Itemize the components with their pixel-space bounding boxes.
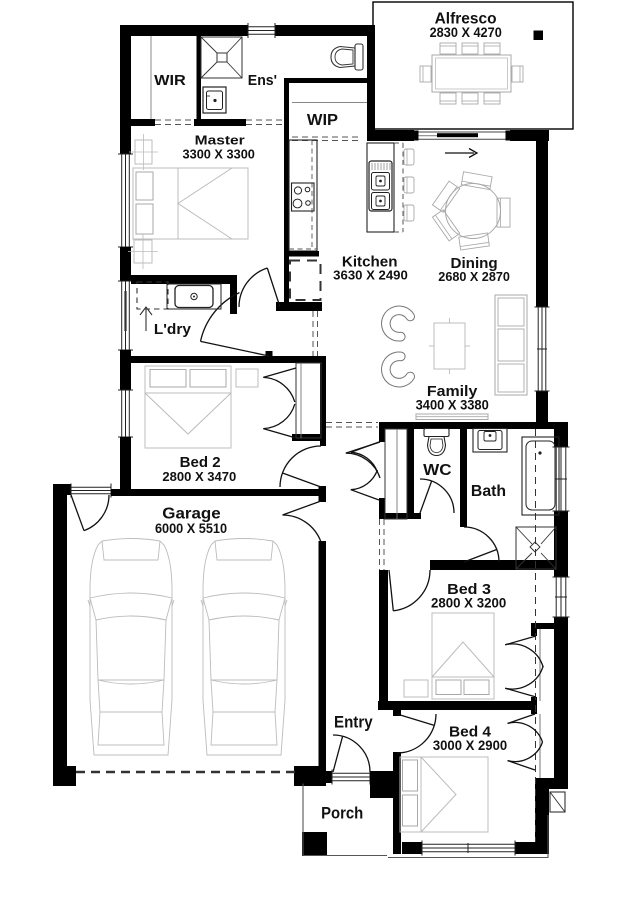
svg-text:2800 X 3200: 2800 X 3200: [431, 595, 507, 610]
svg-text:Ens': Ens': [248, 73, 277, 89]
svg-text:WIP: WIP: [307, 112, 338, 129]
svg-text:Porch: Porch: [321, 805, 363, 823]
svg-text:WC: WC: [423, 462, 451, 479]
svg-text:3400 X 3380: 3400 X 3380: [416, 397, 489, 412]
svg-text:3300 X 3300: 3300 X 3300: [183, 147, 255, 162]
svg-text:3630 X 2490: 3630 X 2490: [333, 267, 408, 282]
svg-text:2830 X 4270: 2830 X 4270: [430, 24, 502, 40]
svg-text:WIR: WIR: [154, 73, 186, 89]
svg-text:2680 X 2870: 2680 X 2870: [438, 269, 510, 284]
svg-text:Entry: Entry: [334, 712, 373, 731]
svg-text:Master: Master: [195, 134, 245, 148]
svg-text:6000 X 5510: 6000 X 5510: [155, 521, 227, 536]
svg-text:L'dry: L'dry: [154, 321, 192, 338]
svg-text:Bath: Bath: [471, 483, 506, 500]
svg-text:3000 X 2900: 3000 X 2900: [433, 738, 507, 753]
svg-text:2800 X 3470: 2800 X 3470: [162, 469, 236, 484]
